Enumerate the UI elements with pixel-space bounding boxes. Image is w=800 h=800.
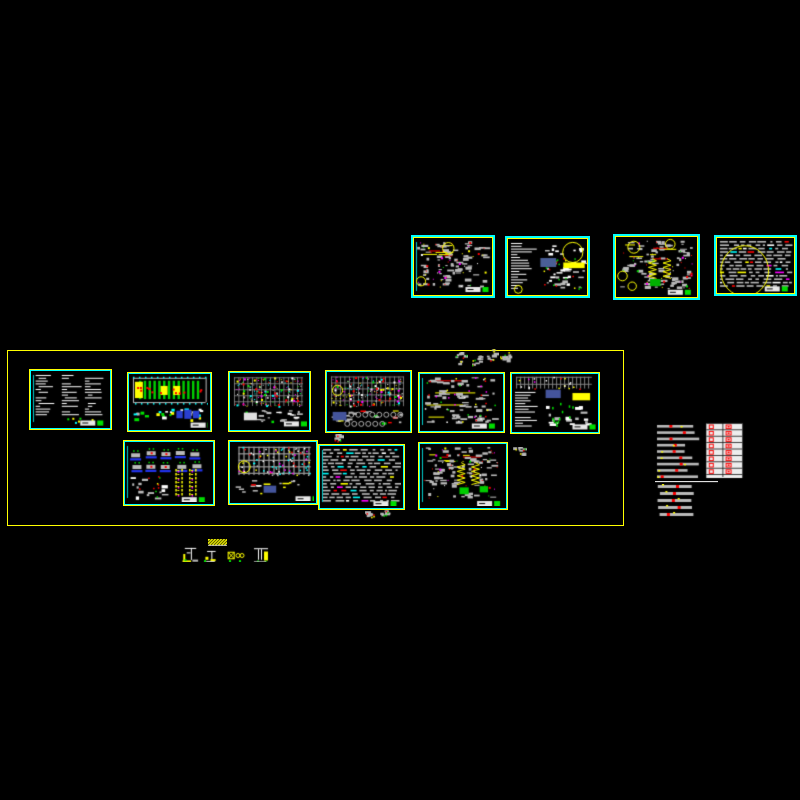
sheet-graphics	[655, 422, 745, 484]
sheet-graphics	[129, 374, 208, 428]
drawing-fragment-r1-tail	[655, 484, 702, 523]
sheet-inner-border	[716, 237, 795, 294]
sheet-graphics	[655, 481, 718, 483]
sheet-graphics	[365, 511, 376, 519]
drawing-fragment-f3	[484, 349, 499, 364]
drawing-sheet-t3[interactable]	[613, 234, 700, 300]
drawing-sheet-b2[interactable]	[228, 440, 318, 505]
sheet-graphics	[230, 373, 307, 428]
drawing-sheet-m3[interactable]	[228, 371, 311, 432]
sheet-graphics	[454, 352, 468, 366]
drawing-sheet-t1[interactable]	[411, 235, 495, 298]
drawing-sheet-b1[interactable]	[123, 440, 215, 506]
sheet-graphics	[334, 434, 344, 443]
sheet-inner-border	[511, 373, 599, 433]
sheet-inner-border	[615, 236, 698, 298]
sheet-graphics	[208, 539, 227, 546]
sheet-inner-border	[229, 372, 310, 431]
drawing-fragment-f8	[380, 510, 393, 519]
sheet-graphics	[500, 351, 513, 364]
drawing-sheet-r1[interactable]	[655, 422, 745, 484]
sheet-graphics	[414, 238, 492, 295]
legend-detail-2	[202, 549, 219, 562]
cad-model-space	[0, 0, 800, 800]
drawing-fragment-f2	[472, 355, 484, 367]
drawing-fragment-f6	[513, 447, 527, 456]
sheet-graphics	[202, 549, 219, 562]
sheet-graphics	[508, 239, 587, 295]
sheet-graphics	[484, 349, 499, 364]
legend-hatch-bar	[208, 539, 227, 546]
drawing-sheet-m4[interactable]	[325, 370, 412, 433]
sheet-graphics	[327, 372, 408, 429]
drawing-sheet-m5[interactable]	[418, 372, 505, 433]
sheet-graphics	[31, 371, 108, 426]
drawing-sheet-t2[interactable]	[505, 236, 590, 298]
legend-detail-4	[251, 547, 271, 562]
drawing-fragment-f5	[334, 434, 344, 443]
drawing-sheet-b3[interactable]	[318, 444, 405, 510]
sheet-inner-border	[326, 371, 411, 432]
sheet-inner-border	[319, 445, 404, 509]
sheet-graphics	[513, 447, 527, 456]
legend-detail-3	[227, 549, 247, 562]
sheet-inner-border	[128, 373, 211, 431]
sheet-graphics	[512, 374, 596, 430]
drawing-sheet-m1[interactable]	[29, 369, 112, 430]
sheet-graphics	[227, 549, 247, 562]
sheet-graphics	[181, 546, 200, 562]
sheet-graphics	[230, 442, 314, 501]
sheet-graphics	[472, 355, 484, 367]
sheet-inner-border	[124, 441, 214, 505]
sheet-graphics	[380, 510, 393, 519]
sheet-inner-border	[419, 443, 507, 509]
sheet-graphics	[320, 446, 401, 506]
sheet-inner-border	[30, 370, 111, 429]
legend-detail-1	[181, 546, 200, 562]
drawing-sheet-b4[interactable]	[418, 442, 508, 510]
sheet-graphics	[655, 484, 702, 523]
drawing-fragment-f1	[454, 352, 468, 366]
sheet-graphics	[420, 444, 504, 506]
sheet-inner-border	[419, 373, 504, 432]
sheet-graphics	[717, 238, 794, 293]
drawing-sheet-m2[interactable]	[127, 372, 212, 432]
sheet-graphics	[420, 374, 501, 429]
sheet-inner-border	[229, 441, 317, 504]
drawing-fragment-f7	[365, 511, 376, 519]
drawing-fragment-r1-line	[655, 481, 718, 483]
drawing-sheet-m6[interactable]	[510, 372, 600, 434]
sheet-inner-border	[507, 238, 588, 296]
drawing-fragment-f4	[500, 351, 513, 364]
drawing-sheet-t4[interactable]	[714, 235, 797, 296]
sheet-inner-border	[413, 237, 493, 296]
sheet-graphics	[125, 442, 211, 502]
sheet-graphics	[616, 237, 697, 297]
sheet-graphics	[251, 547, 271, 562]
